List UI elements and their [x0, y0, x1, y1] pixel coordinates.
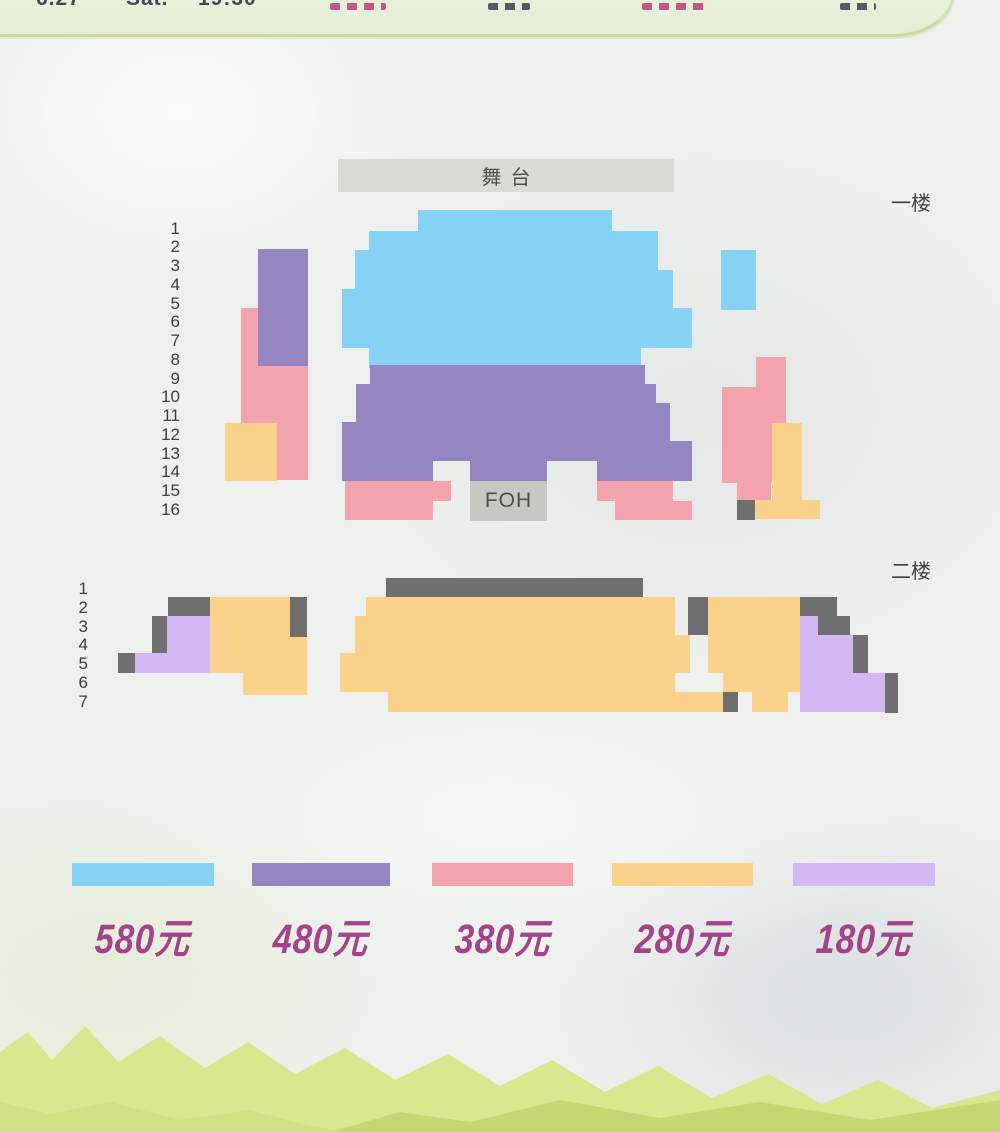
row-number: 7	[146, 331, 180, 350]
row-number: 2	[54, 598, 88, 617]
legend-price-label: 280元	[583, 905, 783, 965]
row-number: 6	[54, 673, 88, 692]
seat-block-dark	[118, 653, 135, 673]
seat-block-dark	[386, 578, 643, 597]
seat-block-pink	[597, 481, 673, 501]
seat-block-dark	[688, 597, 708, 635]
seat-block-lavender	[800, 616, 818, 635]
row-number: 5	[146, 294, 180, 313]
seat-block-blue	[418, 210, 612, 231]
row-number: 15	[146, 481, 180, 500]
seat-block-orange	[340, 653, 690, 673]
watercolor-hills	[0, 1002, 1000, 1132]
seat-block-lavender	[135, 653, 210, 673]
foh-box: FOH	[470, 481, 547, 521]
seatmap-page: 6.27Sat.19:30 舞台 一楼 二楼 12345678910111213…	[0, 0, 1000, 1132]
row-number: 4	[146, 275, 180, 294]
row-number: 10	[146, 387, 180, 406]
stage-bar: 舞台	[338, 159, 674, 192]
seat-block-orange	[752, 692, 788, 712]
stage-label: 舞台	[473, 161, 540, 190]
row-number: 13	[146, 444, 180, 463]
legend-swatch	[612, 863, 753, 886]
seat-block-blue	[342, 289, 673, 308]
seat-block-orange	[708, 597, 800, 673]
seat-block-pink	[615, 501, 692, 520]
seat-block-orange	[772, 423, 802, 500]
seat-block-purple	[356, 384, 656, 403]
floor1-label: 一楼	[891, 187, 931, 216]
seat-block-orange	[355, 635, 690, 653]
seat-block-lavender	[800, 692, 885, 712]
seat-block-orange	[210, 637, 307, 673]
header-text-fragment: 6.27	[36, 0, 90, 11]
row-number: 2	[146, 237, 180, 256]
seat-block-orange	[388, 692, 723, 712]
seat-block-dark	[818, 616, 850, 635]
row-number: 3	[146, 256, 180, 275]
seat-block-dark	[853, 635, 868, 673]
row-number: 1	[146, 219, 180, 238]
seat-block-blue	[342, 308, 692, 348]
seat-block-blue	[355, 250, 658, 270]
seat-block-orange	[366, 597, 675, 616]
seat-block-orange	[225, 423, 277, 481]
legend-swatch	[432, 863, 573, 886]
seat-block-purple	[342, 422, 670, 441]
seat-block-pink	[737, 483, 771, 500]
row-number: 5	[54, 654, 88, 673]
seat-block-orange	[243, 673, 307, 695]
seat-block-lavender	[167, 616, 210, 653]
header-text-fragment	[488, 3, 530, 10]
row-number: 8	[146, 350, 180, 369]
row-number: 3	[54, 617, 88, 636]
row-number: 14	[146, 462, 180, 481]
header-text-fragment	[642, 3, 708, 10]
seat-block-dark	[885, 673, 898, 713]
header-text-fragment	[330, 3, 386, 10]
seat-block-orange	[340, 673, 675, 692]
seat-block-blue	[369, 231, 658, 250]
seat-block-lavender	[800, 635, 853, 673]
legend-price-label: 580元	[43, 905, 243, 965]
seat-block-purple	[597, 461, 692, 481]
row-number: 16	[146, 500, 180, 519]
seat-block-dark	[152, 616, 167, 653]
foh-label: FOH	[485, 489, 532, 513]
seat-block-blue	[721, 250, 756, 310]
seat-block-dark	[800, 597, 837, 616]
row-number: 4	[54, 635, 88, 654]
legend-price-label: 480元	[221, 905, 421, 965]
row-number: 7	[54, 692, 88, 711]
seat-block-purple	[470, 461, 547, 481]
row-number: 6	[146, 312, 180, 331]
seat-block-purple	[258, 249, 308, 366]
seat-block-orange	[723, 673, 800, 692]
seat-block-dark	[168, 597, 210, 616]
row-number: 1	[54, 579, 88, 598]
seat-block-dark	[290, 597, 307, 637]
seat-block-dark	[723, 691, 738, 712]
seat-block-orange	[755, 500, 820, 519]
legend-swatch	[252, 863, 390, 886]
header-text-fragment	[840, 3, 876, 10]
legend-swatch	[793, 863, 935, 886]
floor2-label: 二楼	[891, 555, 931, 584]
row-number: 12	[146, 425, 180, 444]
seat-block-pink	[345, 481, 451, 501]
row-number: 9	[146, 369, 180, 388]
seat-block-lavender	[800, 673, 885, 692]
seat-block-purple	[342, 441, 692, 461]
legend-price-label: 380元	[403, 905, 603, 965]
seat-block-dark	[737, 500, 755, 520]
seat-block-purple	[370, 365, 645, 384]
seat-block-blue	[355, 270, 673, 289]
seat-block-purple	[342, 461, 433, 481]
header-text-fragment: 19:30	[198, 0, 264, 11]
seat-block-orange	[210, 597, 290, 637]
header-text-fragment: Sat.	[126, 0, 174, 11]
legend-swatch	[72, 863, 214, 886]
seat-block-purple	[356, 403, 670, 422]
seat-block-orange	[355, 616, 675, 635]
seat-block-pink	[345, 501, 433, 520]
row-number: 11	[146, 406, 180, 425]
legend-price-label: 180元	[764, 905, 964, 965]
seat-block-pink	[756, 357, 786, 387]
